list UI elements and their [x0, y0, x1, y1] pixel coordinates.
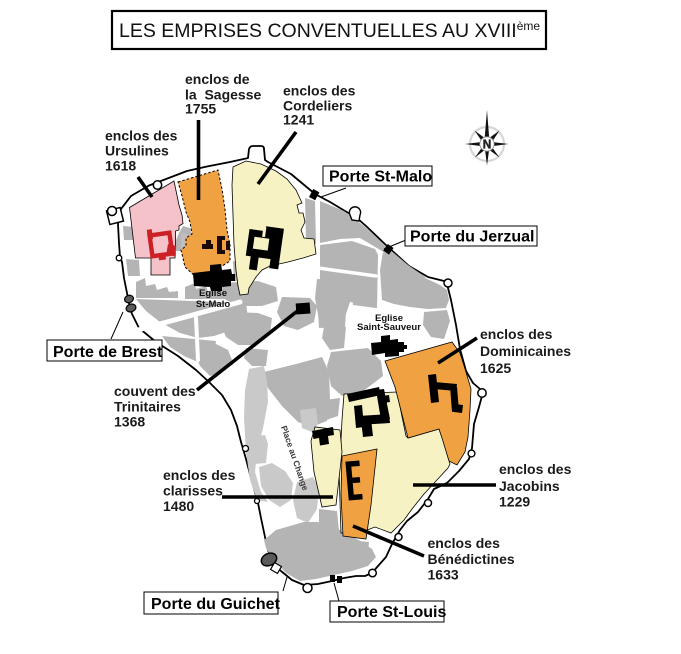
svg-text:1755: 1755	[185, 101, 216, 117]
svg-text:St-Malo: St-Malo	[196, 299, 231, 310]
svg-text:Porte du Guichet: Porte du Guichet	[151, 596, 281, 613]
svg-text:enclos des: enclos des	[480, 326, 553, 342]
svg-text:Dominicaines: Dominicaines	[480, 343, 571, 359]
svg-text:1625: 1625	[480, 360, 511, 376]
svg-text:clarisses: clarisses	[163, 483, 223, 499]
svg-text:1241: 1241	[283, 112, 314, 128]
svg-text:Eglise: Eglise	[199, 288, 227, 299]
svg-text:1480: 1480	[163, 498, 194, 514]
svg-text:1229: 1229	[499, 494, 530, 510]
svg-text:LES EMPRISES CONVENTUELLES AU: LES EMPRISES CONVENTUELLES AU XVIIIème	[119, 19, 540, 42]
svg-text:enclos des: enclos des	[428, 535, 501, 551]
svg-text:enclos des: enclos des	[163, 467, 236, 483]
svg-text:Jacobins: Jacobins	[499, 478, 560, 494]
svg-text:Ursulines: Ursulines	[105, 143, 169, 159]
svg-text:Porte St-Louis: Porte St-Louis	[337, 604, 446, 621]
svg-text:Porte du Jerzual: Porte du Jerzual	[410, 229, 534, 246]
svg-text:Saint-Sauveur: Saint-Sauveur	[357, 322, 421, 333]
svg-text:Porte St-Malo: Porte St-Malo	[329, 169, 432, 186]
svg-text:1633: 1633	[428, 567, 459, 583]
svg-text:1368: 1368	[114, 414, 145, 430]
svg-text:Bénédictines: Bénédictines	[428, 551, 515, 567]
svg-text:enclos des: enclos des	[499, 461, 572, 477]
svg-text:Porte de Brest: Porte de Brest	[53, 344, 163, 361]
svg-text:Trinitaires: Trinitaires	[114, 398, 181, 414]
svg-text:couvent des: couvent des	[114, 383, 196, 399]
svg-text:enclos de: enclos de	[185, 71, 250, 87]
svg-text:enclos des: enclos des	[105, 128, 178, 144]
svg-text:enclos des: enclos des	[283, 83, 356, 99]
svg-text:1618: 1618	[105, 158, 136, 174]
